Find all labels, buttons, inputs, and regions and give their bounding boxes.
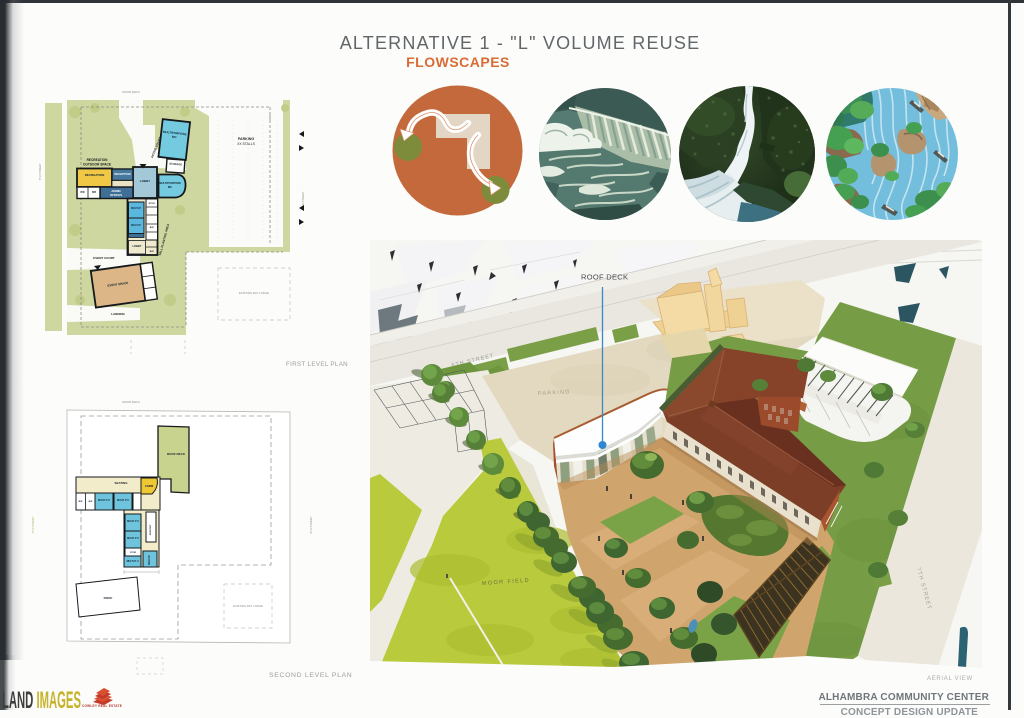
svg-text:EXISTING DAY LODGE: EXISTING DAY LODGE	[233, 604, 263, 608]
svg-text:MULTI-P U: MULTI-P U	[98, 499, 110, 502]
svg-text:STOR: STOR	[149, 203, 155, 205]
svg-text:MOOR FIELD: MOOR FIELD	[122, 90, 139, 94]
svg-text:PARKING: PARKING	[238, 137, 255, 141]
svg-text:SUPPORT: SUPPORT	[150, 524, 152, 535]
svg-text:MOOR FIELD: MOOR FIELD	[122, 400, 139, 404]
svg-text:B/R: B/R	[150, 227, 154, 229]
svg-text:OFFICES: OFFICES	[110, 193, 122, 197]
svg-text:LOBBY: LOBBY	[132, 244, 141, 248]
svg-text:ROOF: ROOF	[104, 596, 113, 600]
svg-text:MULTI-P U: MULTI-P U	[127, 537, 139, 540]
svg-text:SEATING: SEATING	[114, 481, 128, 485]
svg-text:XX STALLS: XX STALLS	[237, 142, 256, 146]
svg-text:EVENT COURT: EVENT COURT	[93, 256, 115, 260]
svg-text:B/R: B/R	[79, 501, 83, 503]
svg-text:B/R: B/R	[150, 251, 154, 253]
svg-text:ROOF DECK: ROOF DECK	[581, 273, 628, 282]
svg-text:MULTI-P: MULTI-P	[131, 207, 141, 210]
svg-text:LANDING: LANDING	[111, 312, 125, 316]
svg-text:B/R: B/R	[80, 191, 84, 194]
svg-text:RECEPTION: RECEPTION	[114, 172, 130, 176]
svg-text:MULTI-P U: MULTI-P U	[117, 499, 129, 502]
svg-text:RECREATION: RECREATION	[85, 173, 105, 177]
svg-text:MC: MC	[168, 185, 172, 189]
svg-text:MULTI-P: MULTI-P	[131, 224, 141, 227]
svg-text:6TH STREET: 6TH STREET	[309, 516, 313, 533]
svg-text:7TH STREET: 7TH STREET	[38, 163, 42, 180]
svg-text:7TH STREET: 7TH STREET	[31, 516, 35, 533]
svg-text:COMM: COMM	[145, 484, 153, 488]
svg-text:MULTI-P U: MULTI-P U	[127, 560, 139, 563]
svg-text:RECREATION: RECREATION	[87, 158, 109, 162]
svg-text:OUTDOOR SPACE: OUTDOOR SPACE	[83, 163, 111, 167]
svg-text:B/R: B/R	[92, 191, 96, 194]
svg-text:ROOF DECK: ROOF DECK	[167, 452, 186, 456]
svg-text:LOBBY: LOBBY	[140, 179, 151, 183]
svg-text:MULTI-P: MULTI-P	[148, 555, 151, 565]
svg-text:EXISTING DAY LODGE: EXISTING DAY LODGE	[239, 291, 269, 295]
svg-text:B/R: B/R	[89, 501, 93, 503]
svg-text:MULTI-P U: MULTI-P U	[127, 520, 139, 523]
svg-text:STOR: STOR	[130, 552, 136, 554]
